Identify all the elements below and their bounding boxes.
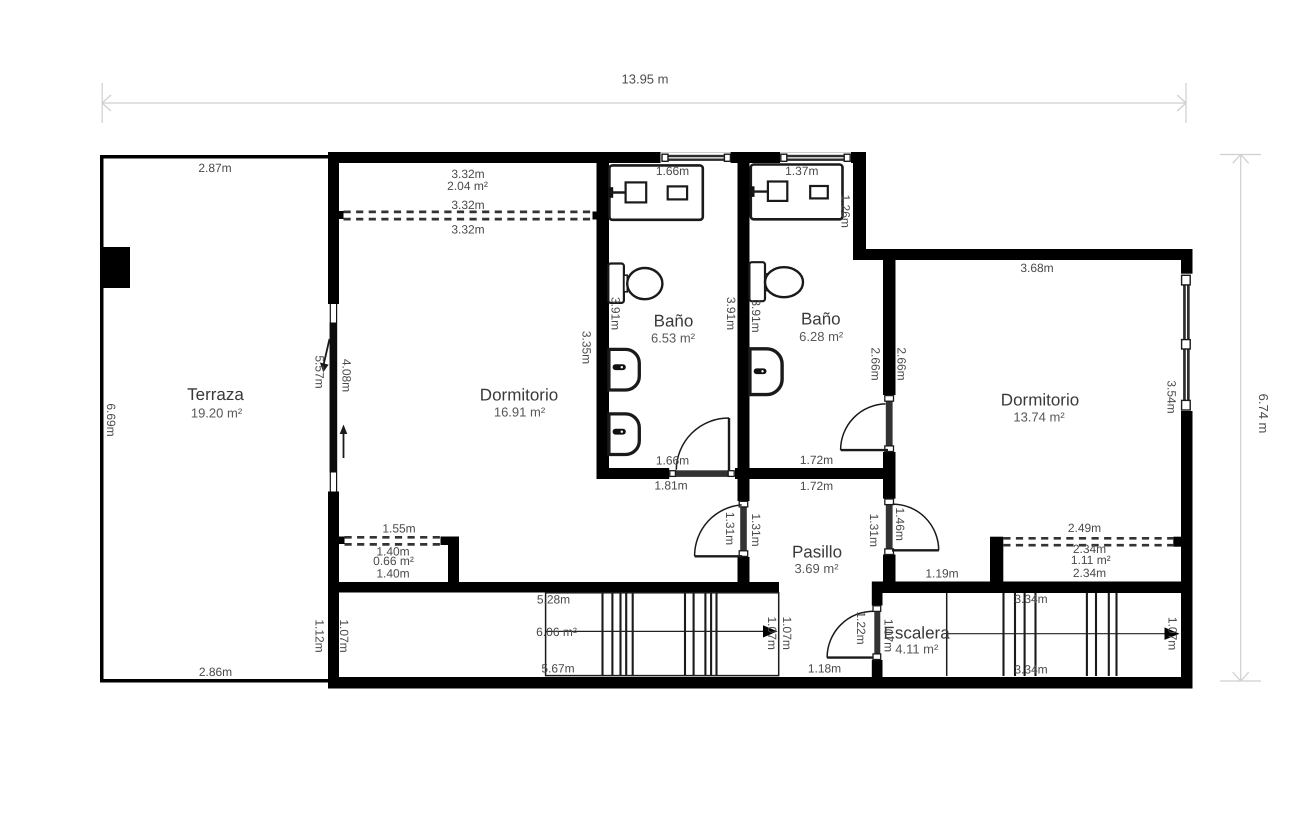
svg-text:2.86m: 2.86m	[199, 665, 232, 679]
svg-text:2.66m: 2.66m	[895, 347, 909, 380]
svg-text:1.31m: 1.31m	[723, 512, 737, 545]
svg-text:4.08m: 4.08m	[339, 359, 353, 392]
svg-text:3.32m: 3.32m	[451, 223, 484, 237]
svg-text:1.07m: 1.07m	[780, 617, 794, 650]
svg-text:Baño: Baño	[801, 310, 841, 329]
svg-text:Pasillo: Pasillo	[792, 543, 842, 562]
svg-text:5.57m: 5.57m	[312, 355, 326, 388]
svg-text:1.26m: 1.26m	[839, 195, 853, 228]
svg-text:4.11 m²: 4.11 m²	[895, 642, 939, 657]
svg-text:2.34m: 2.34m	[1073, 566, 1106, 580]
svg-text:1.55m: 1.55m	[382, 522, 415, 536]
svg-text:1.07m: 1.07m	[337, 619, 351, 652]
svg-text:1.31m: 1.31m	[749, 513, 763, 546]
svg-text:13.74 m²: 13.74 m²	[1013, 410, 1065, 425]
svg-text:2.49m: 2.49m	[1068, 521, 1101, 535]
svg-text:5.67m: 5.67m	[541, 662, 574, 676]
svg-text:3.69 m²: 3.69 m²	[794, 561, 839, 576]
svg-text:3.34m: 3.34m	[1014, 592, 1047, 606]
svg-text:1.66m: 1.66m	[656, 454, 689, 468]
svg-text:1.66m: 1.66m	[656, 164, 689, 178]
svg-text:1.37m: 1.37m	[785, 164, 818, 178]
svg-text:3.34m: 3.34m	[1014, 663, 1047, 677]
svg-text:1.40m: 1.40m	[376, 567, 409, 581]
svg-text:2.66m: 2.66m	[868, 347, 882, 380]
svg-text:1.72m: 1.72m	[800, 453, 833, 467]
svg-text:3.91m: 3.91m	[749, 299, 763, 332]
svg-text:5.28m: 5.28m	[537, 593, 570, 607]
svg-text:3.54m: 3.54m	[1164, 380, 1178, 413]
svg-text:6.53 m²: 6.53 m²	[651, 330, 696, 345]
svg-text:1.07m: 1.07m	[765, 617, 779, 650]
svg-text:1.19m: 1.19m	[925, 567, 958, 581]
svg-text:6.06 m²: 6.06 m²	[536, 625, 577, 639]
svg-text:19.20 m²: 19.20 m²	[191, 406, 243, 421]
svg-text:3.91m: 3.91m	[724, 297, 738, 330]
svg-text:1.81m: 1.81m	[654, 479, 687, 493]
svg-text:13.95 m: 13.95 m	[622, 72, 669, 87]
svg-text:1.22m: 1.22m	[854, 611, 868, 644]
svg-text:1.18m: 1.18m	[808, 662, 841, 676]
svg-text:1.07m: 1.07m	[1165, 617, 1179, 650]
svg-text:3.35m: 3.35m	[579, 331, 593, 364]
svg-text:1.72m: 1.72m	[800, 479, 833, 493]
svg-text:3.68m: 3.68m	[1020, 261, 1053, 275]
svg-text:Baño: Baño	[654, 311, 694, 330]
svg-text:16.91 m²: 16.91 m²	[494, 405, 546, 420]
svg-text:2.04 m²: 2.04 m²	[447, 179, 488, 193]
svg-text:6.69m: 6.69m	[104, 403, 118, 436]
svg-text:Dormitorio: Dormitorio	[1001, 391, 1079, 410]
svg-text:Terraza: Terraza	[187, 385, 244, 404]
svg-text:3.32m: 3.32m	[451, 198, 484, 212]
svg-text:3.91m: 3.91m	[609, 297, 623, 330]
svg-text:1.46m: 1.46m	[893, 508, 907, 541]
svg-text:Dormitorio: Dormitorio	[480, 386, 558, 405]
svg-text:2.87m: 2.87m	[198, 161, 231, 175]
svg-text:6.74 m: 6.74 m	[1256, 394, 1271, 434]
svg-text:1.12m: 1.12m	[312, 619, 326, 652]
svg-text:6.28 m²: 6.28 m²	[799, 329, 844, 344]
svg-text:1.31m: 1.31m	[867, 514, 881, 547]
svg-text:1.07m: 1.07m	[881, 619, 895, 652]
